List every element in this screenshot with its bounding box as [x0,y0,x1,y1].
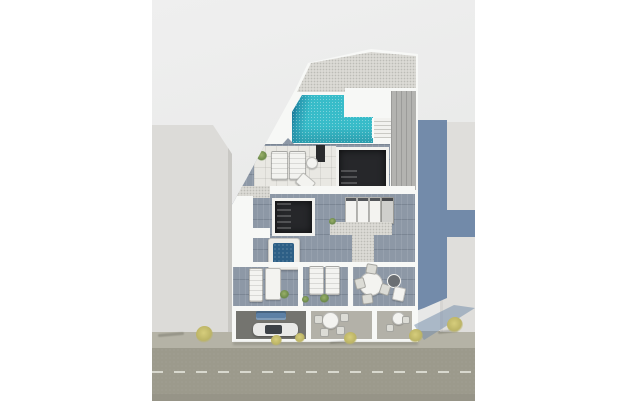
chair [365,263,378,275]
street-tree [295,333,305,343]
potted-plant [329,218,336,225]
ac-unit [345,197,357,224]
potted-plant [280,290,289,299]
rooftop-pool [292,95,373,143]
potted-plant [320,294,329,303]
street-tree [409,329,423,343]
chair [361,293,373,304]
sun-lounger [249,268,263,302]
potted-plant [302,296,309,303]
chair [386,324,394,332]
dresser [265,268,281,300]
sun-lounger [325,266,340,295]
stairwell-opening-mid [272,198,315,236]
interior-wall [250,228,270,238]
street-tree [196,326,213,343]
partition-wall [233,262,415,267]
street-tree [271,335,282,346]
side-walkway-deck [391,91,416,190]
chair [336,326,345,335]
side-table [306,157,318,169]
sun-lounger [271,151,288,180]
street-center-dashed-line [152,371,475,373]
terrace-divider-wall [306,309,311,341]
street-tree [344,332,357,345]
chair [320,328,329,337]
hot-tub-water [273,243,294,264]
terrace-divider-wall [372,309,377,341]
street-far-edge [152,394,475,401]
neighbor-building-left [152,125,232,332]
ac-unit [381,197,394,224]
street-tree [447,317,463,333]
partition-wall [348,262,353,308]
chair [314,315,323,324]
outdoor-sofa [256,311,286,320]
building-ground-shadow [233,342,418,345]
render-canvas [0,0,630,401]
chair [402,316,410,324]
stair-steps [341,170,357,186]
sun-lounger [309,266,324,295]
chair [340,313,349,322]
car-windshield [265,325,282,334]
ac-unit [369,197,381,224]
stair-steps [277,203,291,229]
ac-unit [357,197,369,224]
